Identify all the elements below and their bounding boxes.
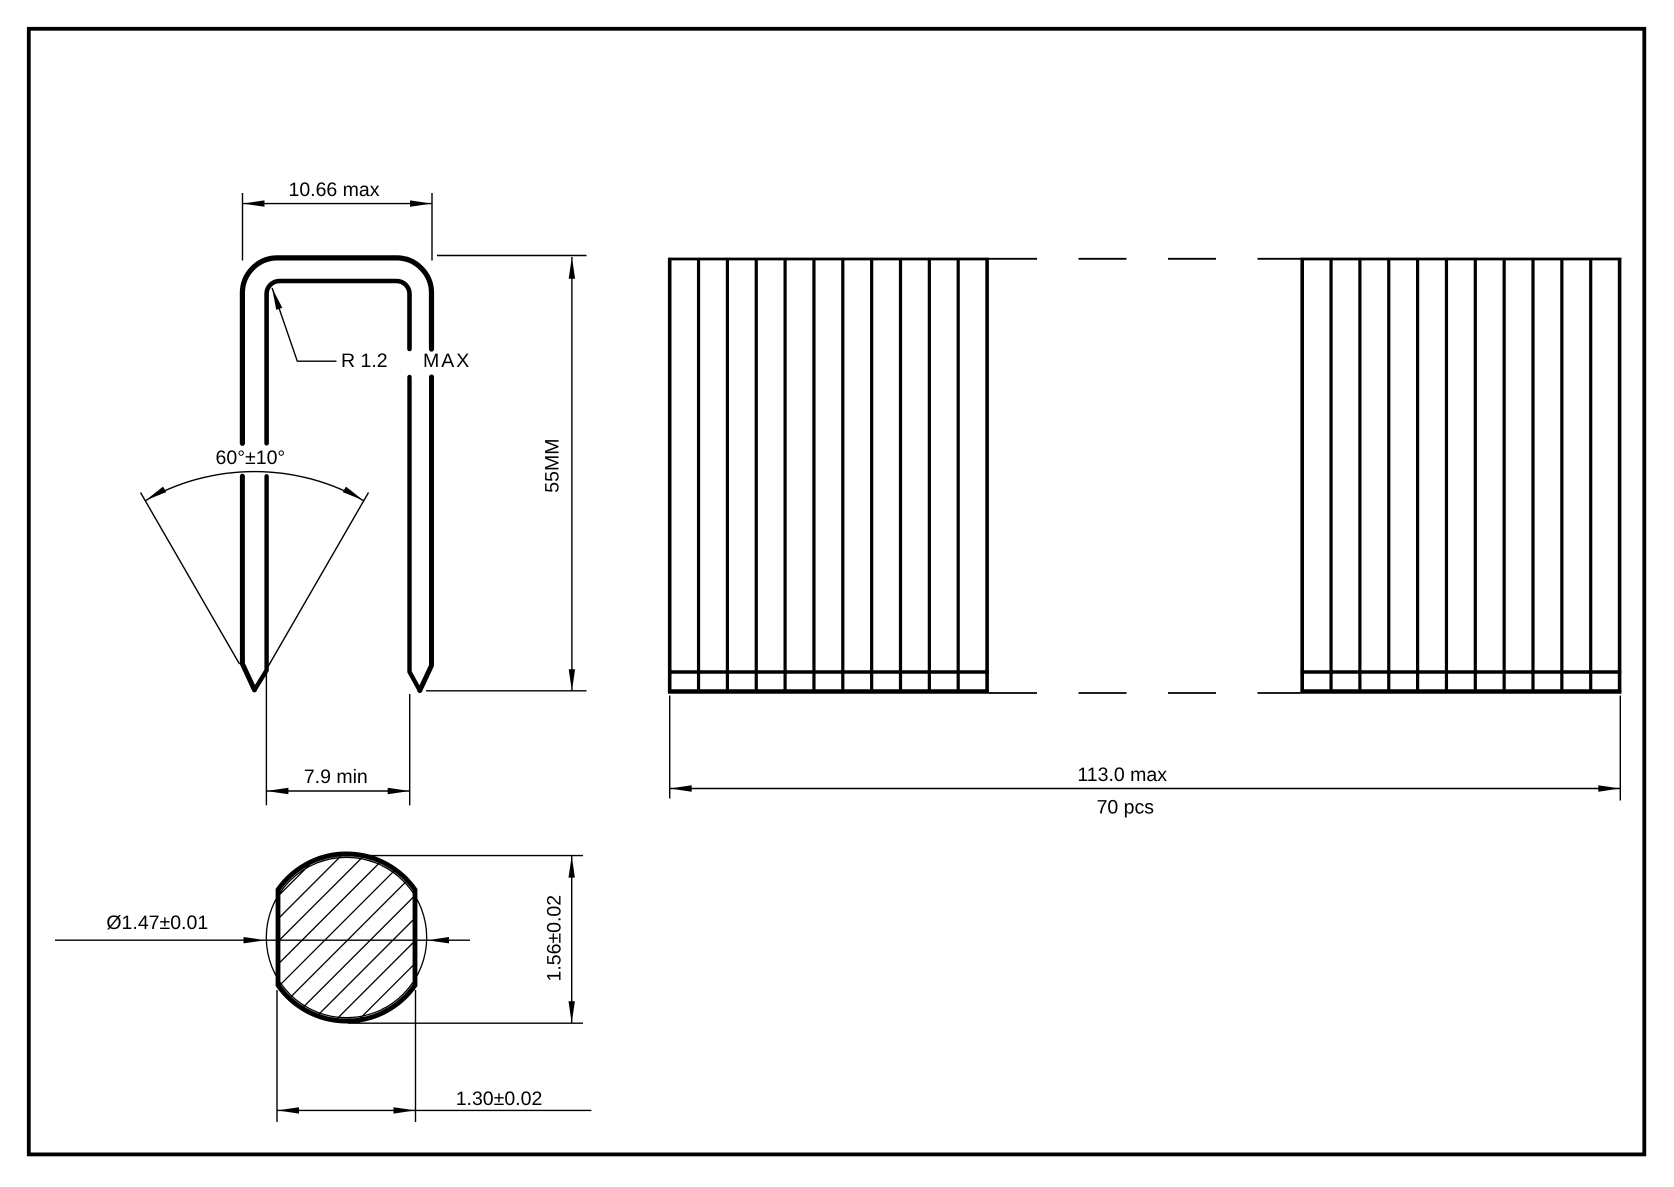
svg-text:55MM: 55MM <box>542 439 564 493</box>
svg-text:113.0 max: 113.0 max <box>1077 764 1167 786</box>
svg-text:1.30±0.02: 1.30±0.02 <box>456 1088 543 1110</box>
svg-text:MAX: MAX <box>423 350 471 372</box>
svg-text:60°±10°: 60°±10° <box>216 447 286 469</box>
svg-text:Ø1.47±0.01: Ø1.47±0.01 <box>106 912 208 934</box>
svg-text:R 1.2: R 1.2 <box>341 350 388 372</box>
svg-text:70 pcs: 70 pcs <box>1097 797 1155 819</box>
svg-text:7.9 min: 7.9 min <box>304 766 368 788</box>
svg-text:1.56±0.02: 1.56±0.02 <box>543 895 565 982</box>
svg-text:10.66 max: 10.66 max <box>288 179 379 201</box>
